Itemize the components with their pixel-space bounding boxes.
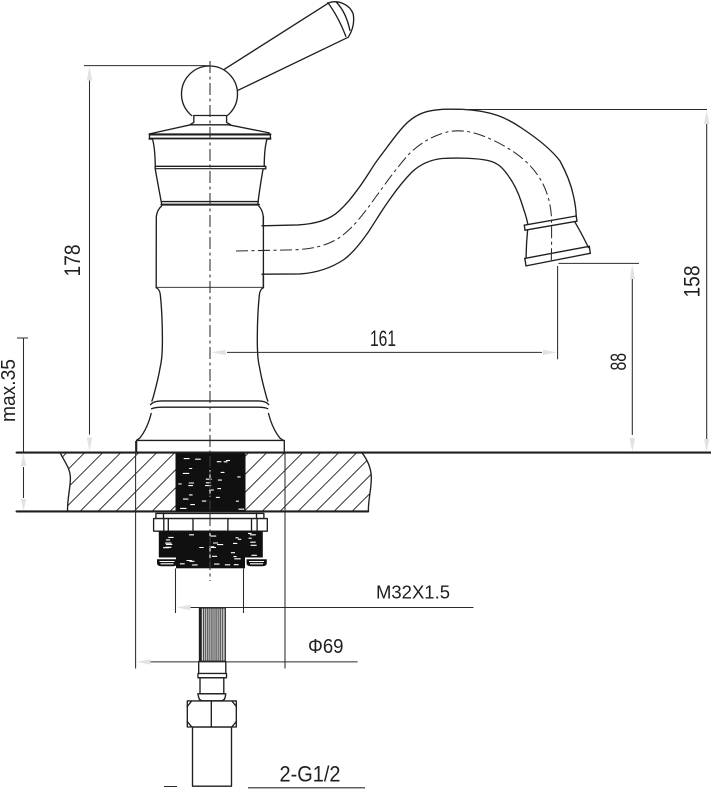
- svg-text:161: 161: [370, 326, 396, 351]
- svg-text:max.35: max.35: [0, 359, 20, 422]
- svg-text:Φ69: Φ69: [308, 636, 344, 658]
- svg-text:88: 88: [606, 353, 631, 371]
- svg-text:158: 158: [680, 266, 705, 298]
- svg-text:178: 178: [60, 245, 85, 277]
- svg-text:2-G1/2: 2-G1/2: [280, 762, 341, 787]
- svg-text:M32X1.5: M32X1.5: [376, 582, 450, 603]
